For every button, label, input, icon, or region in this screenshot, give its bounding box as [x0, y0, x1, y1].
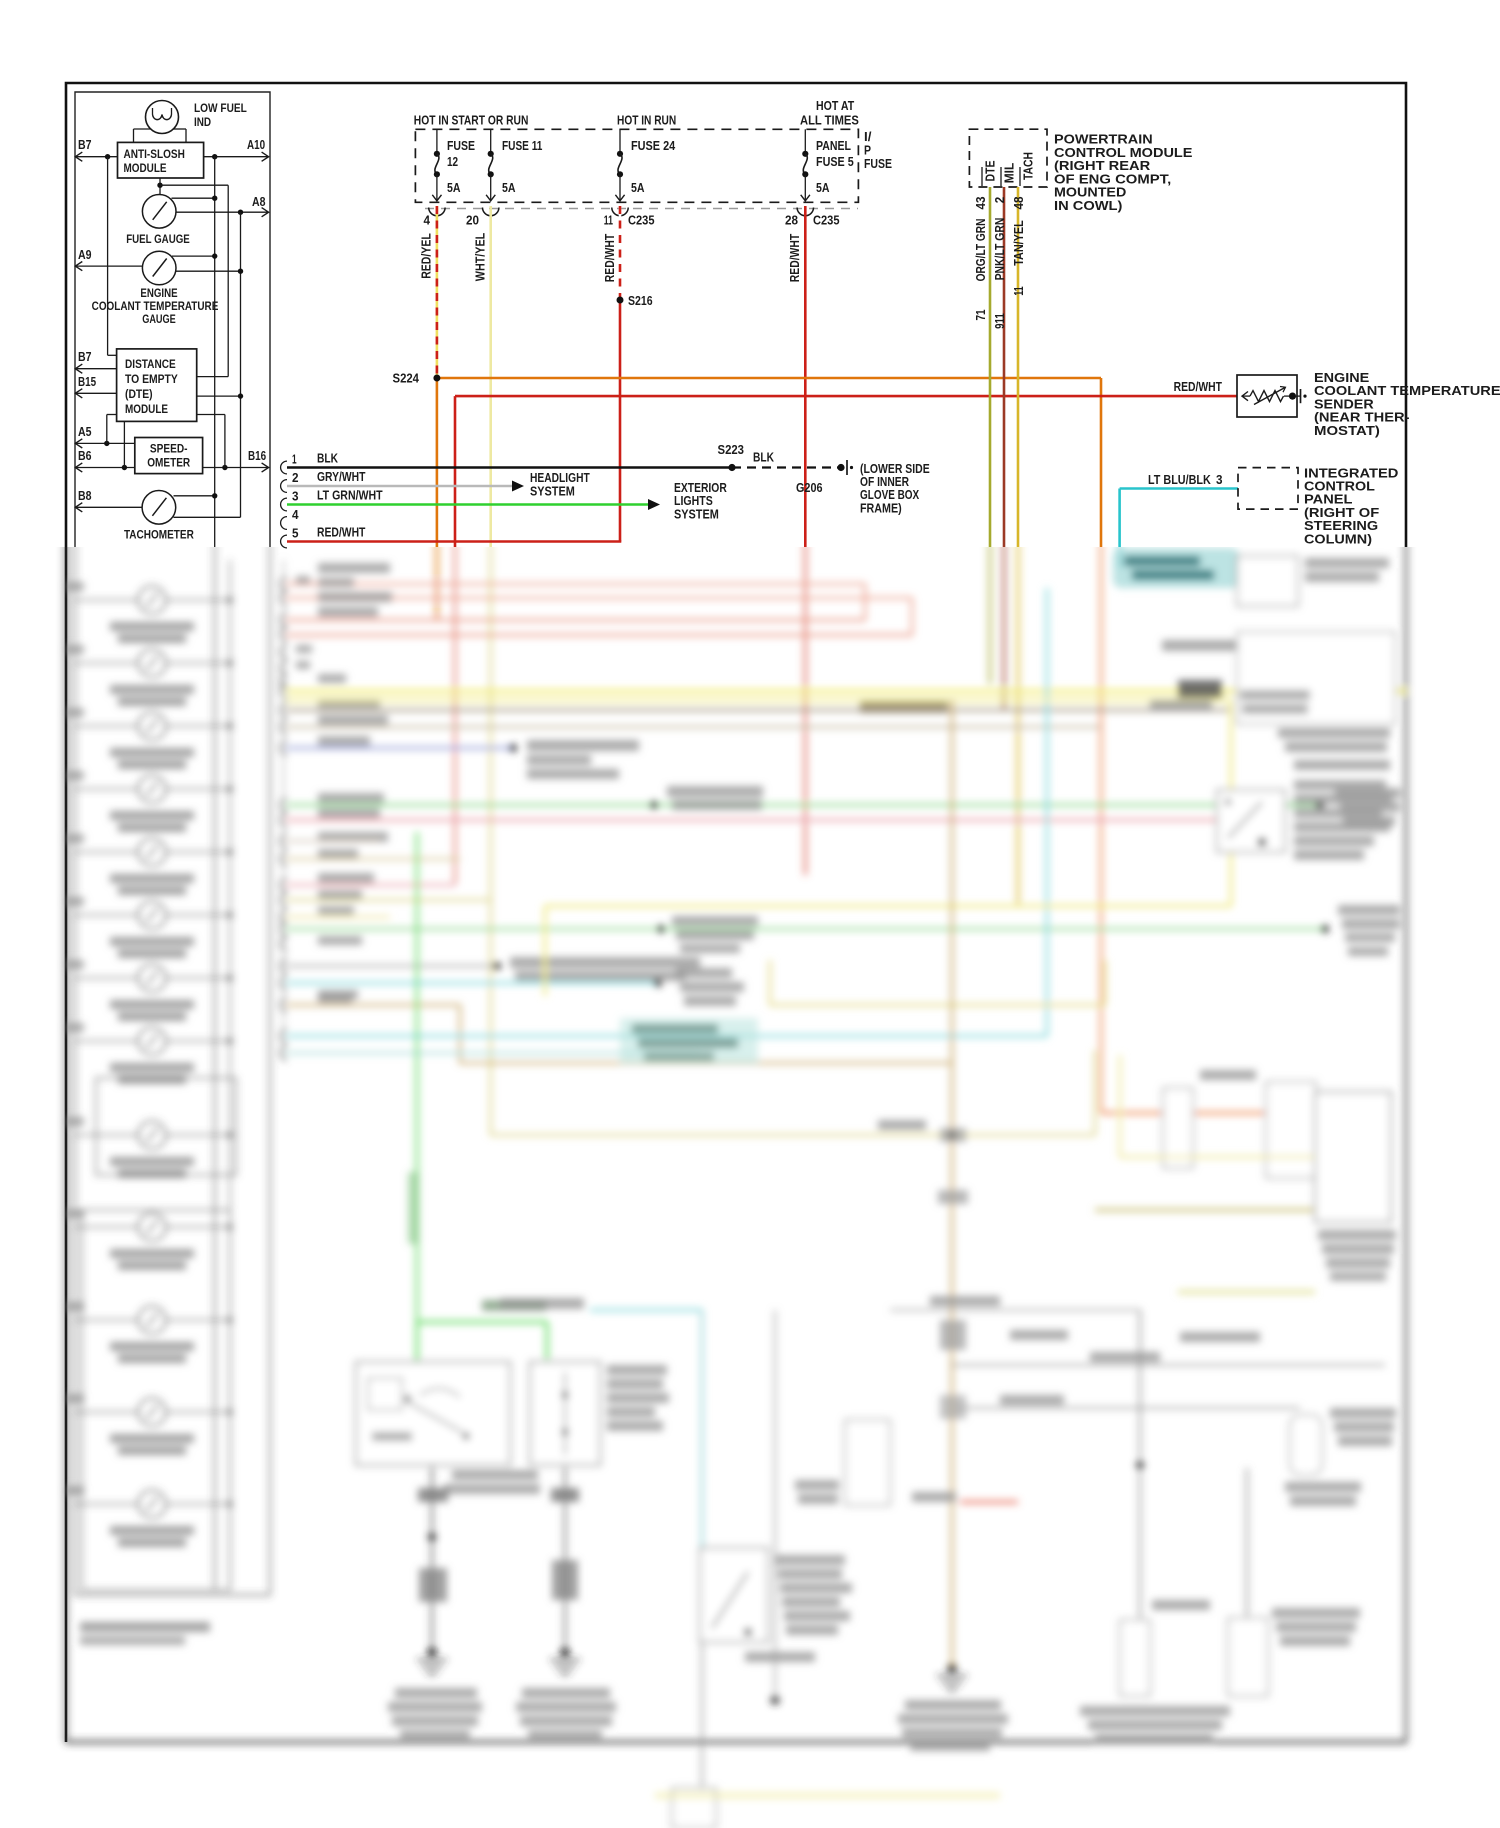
- svg-text:ANTI-SLOSH: ANTI-SLOSH: [124, 147, 185, 161]
- svg-text:RED/WHT: RED/WHT: [603, 234, 617, 283]
- svg-text:C235: C235: [628, 214, 655, 228]
- svg-text:HOT IN START OR RUN: HOT IN START OR RUN: [414, 114, 529, 128]
- svg-text:C235: C235: [813, 214, 840, 228]
- svg-text:A8: A8: [252, 195, 266, 209]
- svg-text:IN COWL): IN COWL): [1054, 198, 1122, 213]
- svg-text:HOT AT: HOT AT: [816, 99, 854, 113]
- svg-text:RED/WHT: RED/WHT: [1174, 380, 1223, 394]
- svg-text:A5: A5: [78, 425, 92, 439]
- svg-text:BLK: BLK: [317, 452, 338, 466]
- svg-text:PANEL: PANEL: [816, 139, 851, 153]
- svg-text:(DTE): (DTE): [125, 387, 153, 401]
- svg-text:GRY/WHT: GRY/WHT: [317, 470, 366, 484]
- svg-text:A10: A10: [247, 138, 265, 152]
- svg-text:FUSE 11: FUSE 11: [502, 139, 542, 153]
- svg-text:S224: S224: [393, 372, 420, 386]
- svg-text:PNK/LT GRN: PNK/LT GRN: [993, 218, 1007, 281]
- svg-text:FUSE: FUSE: [864, 157, 892, 171]
- svg-text:I/: I/: [864, 130, 872, 144]
- svg-text:SYSTEM: SYSTEM: [674, 507, 719, 521]
- svg-text:FUSE 5: FUSE 5: [816, 155, 854, 169]
- svg-text:RED/WHT: RED/WHT: [788, 234, 802, 283]
- svg-text:WHT/YEL: WHT/YEL: [474, 232, 488, 281]
- svg-text:3: 3: [1216, 473, 1223, 487]
- svg-text:SPEED-: SPEED-: [150, 442, 188, 456]
- svg-text:FUSE 24: FUSE 24: [631, 139, 675, 153]
- svg-text:4: 4: [292, 508, 299, 522]
- svg-text:4: 4: [424, 214, 431, 228]
- svg-text:B7: B7: [78, 350, 92, 364]
- svg-text:P: P: [864, 144, 871, 158]
- svg-text:5: 5: [292, 527, 299, 541]
- svg-text:A9: A9: [78, 248, 92, 262]
- svg-text:G206: G206: [796, 481, 823, 495]
- svg-text:5A: 5A: [816, 181, 830, 195]
- svg-text:COLUMN): COLUMN): [1304, 531, 1372, 546]
- svg-text:S216: S216: [628, 294, 653, 308]
- svg-text:B6: B6: [78, 449, 92, 463]
- svg-text:5A: 5A: [631, 181, 645, 195]
- svg-text:COOLANT TEMPERATURE: COOLANT TEMPERATURE: [92, 299, 219, 313]
- svg-text:SYSTEM: SYSTEM: [530, 485, 575, 499]
- svg-text:911: 911: [993, 313, 1007, 329]
- svg-text:FUSE: FUSE: [447, 139, 475, 153]
- svg-text:DTE: DTE: [984, 161, 998, 182]
- svg-text:HOT IN RUN: HOT IN RUN: [617, 114, 676, 128]
- svg-text:FRAME): FRAME): [860, 501, 902, 515]
- svg-text:(LOWER SIDE: (LOWER SIDE: [860, 462, 930, 476]
- svg-text:TACHOMETER: TACHOMETER: [124, 528, 194, 542]
- svg-text:11: 11: [1012, 286, 1026, 295]
- svg-text:S223: S223: [718, 443, 745, 457]
- svg-text:1: 1: [292, 453, 297, 467]
- svg-text:5A: 5A: [447, 181, 461, 195]
- svg-text:5A: 5A: [502, 181, 516, 195]
- svg-text:GLOVE BOX: GLOVE BOX: [860, 488, 920, 502]
- svg-text:TO EMPTY: TO EMPTY: [125, 372, 178, 386]
- svg-text:HEADLIGHT: HEADLIGHT: [530, 471, 590, 485]
- svg-text:LIGHTS: LIGHTS: [674, 494, 713, 508]
- svg-text:RED/YEL: RED/YEL: [420, 233, 434, 279]
- svg-text:B15: B15: [78, 375, 96, 389]
- svg-text:RED/WHT: RED/WHT: [317, 526, 366, 540]
- svg-text:3: 3: [292, 490, 299, 504]
- svg-text:BLK: BLK: [753, 451, 774, 465]
- svg-text:ENGINE: ENGINE: [140, 286, 177, 300]
- svg-text:71: 71: [974, 309, 988, 320]
- svg-text:TAN/YEL: TAN/YEL: [1012, 220, 1026, 266]
- svg-text:DISTANCE: DISTANCE: [125, 357, 176, 371]
- svg-text:2: 2: [292, 471, 299, 485]
- svg-text:43: 43: [974, 196, 988, 209]
- svg-text:MIL: MIL: [1003, 162, 1017, 183]
- svg-text:OF INNER: OF INNER: [860, 475, 909, 489]
- svg-text:GAUGE: GAUGE: [142, 312, 176, 326]
- svg-text:20: 20: [466, 214, 479, 228]
- svg-text:EXTERIOR: EXTERIOR: [674, 481, 727, 495]
- svg-text:MODULE: MODULE: [124, 161, 167, 175]
- svg-text:FUEL GAUGE: FUEL GAUGE: [126, 232, 190, 246]
- svg-text:LOW FUEL: LOW FUEL: [194, 101, 247, 115]
- svg-text:ALL TIMES: ALL TIMES: [800, 114, 859, 128]
- svg-text:B7: B7: [78, 138, 92, 152]
- svg-text:11: 11: [604, 214, 613, 228]
- svg-text:12: 12: [447, 155, 458, 169]
- svg-text:48: 48: [1012, 196, 1026, 209]
- svg-text:ORG/LT GRN: ORG/LT GRN: [974, 219, 988, 282]
- svg-text:MODULE: MODULE: [125, 402, 168, 416]
- svg-text:TACH: TACH: [1022, 152, 1036, 180]
- svg-text:B8: B8: [78, 489, 92, 503]
- svg-text:MOSTAT): MOSTAT): [1314, 423, 1380, 438]
- svg-text:28: 28: [785, 214, 798, 228]
- svg-text:LT BLU/BLK: LT BLU/BLK: [1148, 473, 1211, 487]
- svg-text:B16: B16: [248, 449, 266, 463]
- svg-text:OMETER: OMETER: [147, 456, 190, 470]
- svg-text:LT GRN/WHT: LT GRN/WHT: [317, 489, 383, 503]
- svg-text:2: 2: [993, 197, 1007, 204]
- svg-text:IND: IND: [194, 115, 211, 129]
